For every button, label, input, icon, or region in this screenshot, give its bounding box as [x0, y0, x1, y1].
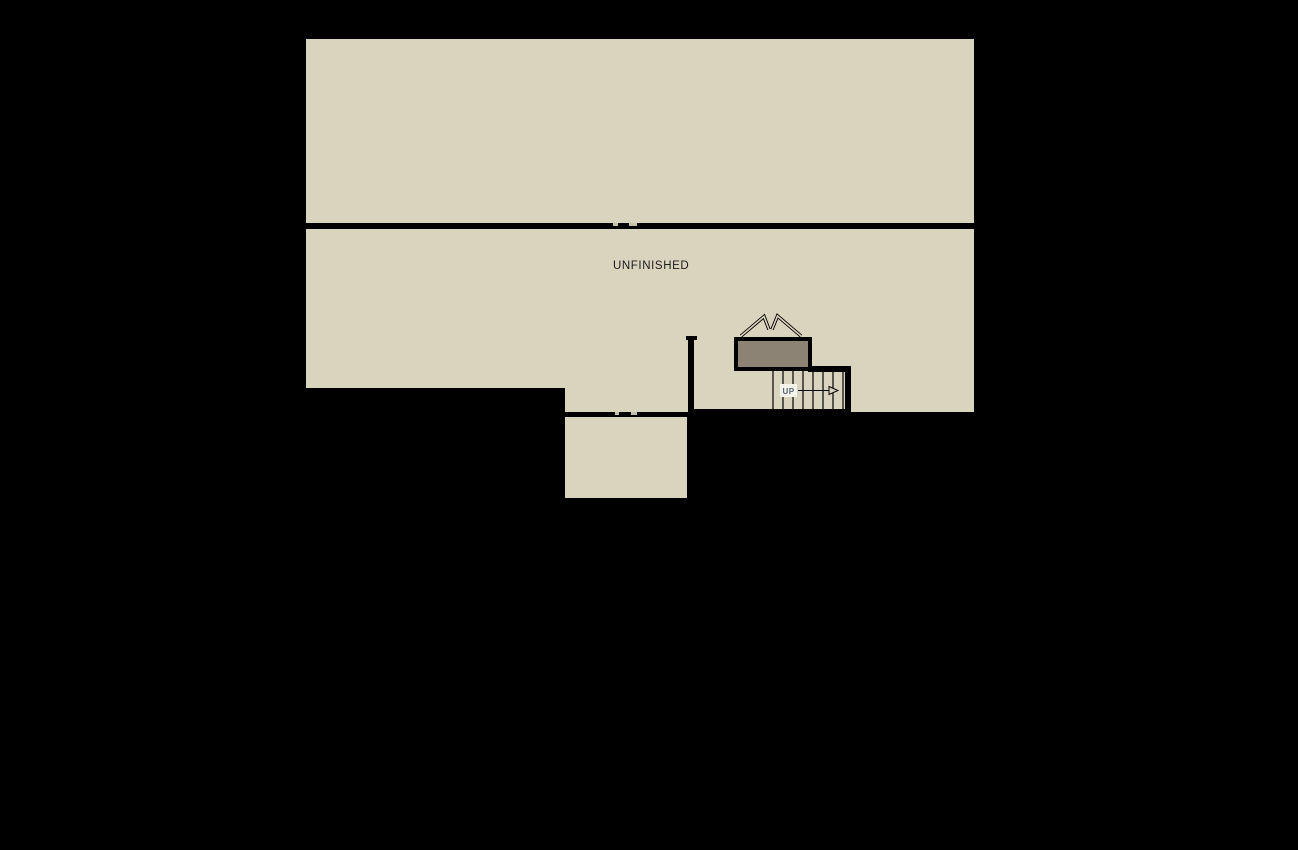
room-label: UNFINISHED	[613, 260, 689, 272]
staircase: UP	[680, 300, 860, 425]
wall-opening-mark-upper-1	[613, 223, 618, 226]
double-door-swing-icon	[741, 316, 801, 336]
wall-opening-mark-upper-2	[629, 223, 637, 226]
up-direction-arrow	[798, 387, 838, 395]
stair-top-wall	[808, 366, 851, 372]
stair-landing-fill	[738, 341, 808, 367]
up-label: UP	[783, 387, 795, 396]
wall-stub	[688, 336, 694, 412]
stair-bottom-wall	[694, 409, 851, 417]
floor-plan-canvas: UNFINISHED	[0, 0, 1298, 850]
upper-room-floor	[306, 39, 974, 223]
wall-opening-mark-lower-1	[615, 412, 619, 415]
wall-opening-mark-lower-2	[631, 412, 637, 415]
small-room-floor	[565, 417, 687, 498]
main-room-floor	[306, 229, 974, 388]
